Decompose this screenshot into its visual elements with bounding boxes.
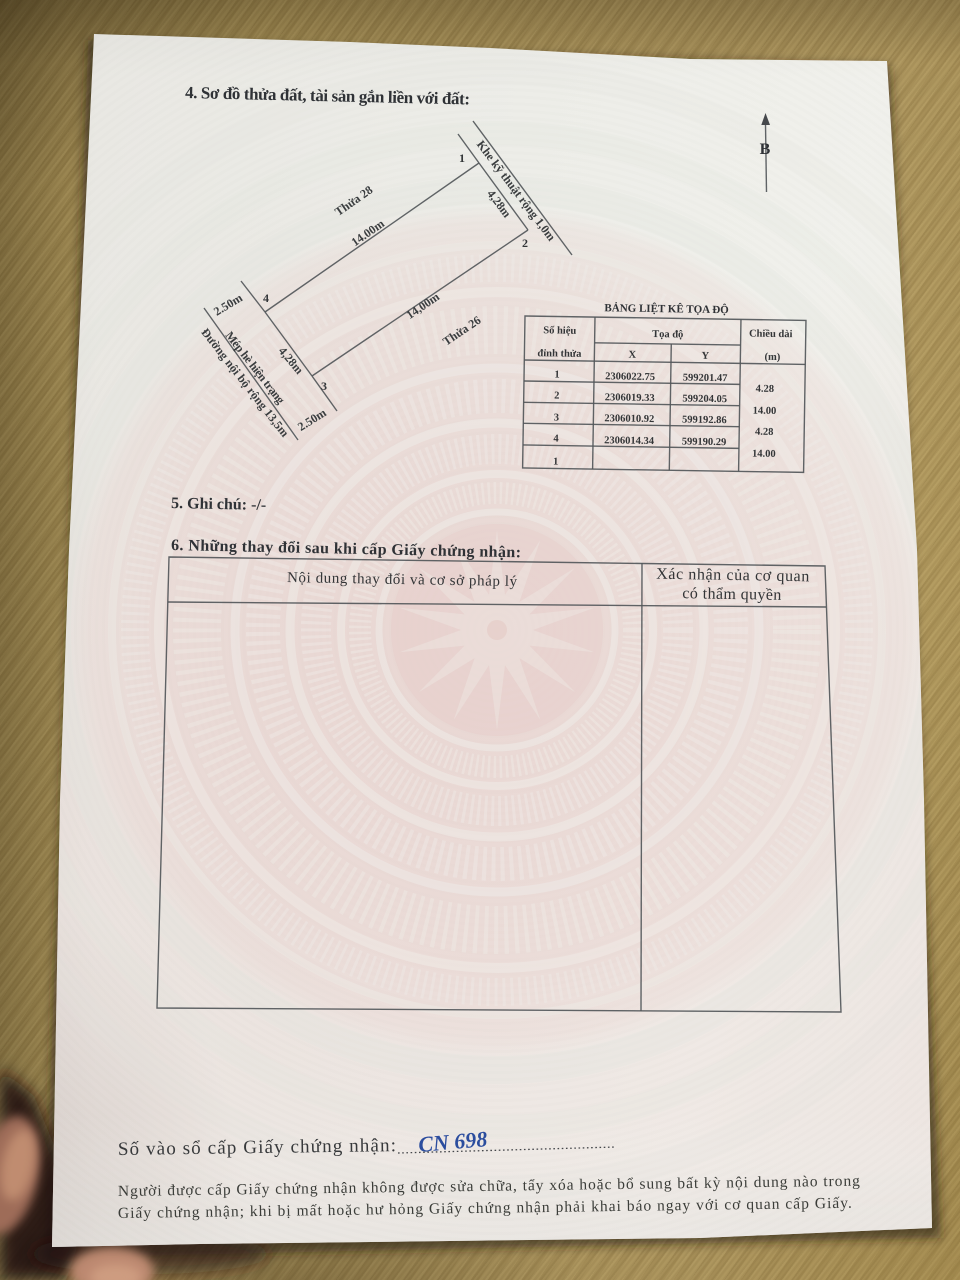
svg-text:có thẩm quyền: có thẩm quyền (682, 585, 782, 604)
svg-text:2.50m: 2.50m (295, 405, 329, 433)
svg-text:Nội dung thay đổi và cơ sở phá: Nội dung thay đổi và cơ sở pháp lý (287, 570, 518, 590)
svg-text:599190.29: 599190.29 (682, 436, 727, 448)
svg-text:Giấy chứng nhận; khi bị mất ho: Giấy chứng nhận; khi bị mất hoặc hư hỏng… (118, 1195, 852, 1222)
svg-text:BẢNG LIỆT KÊ TỌA ĐỘ: BẢNG LIỆT KÊ TỌA ĐỘ (604, 301, 729, 316)
svg-text:4. Sơ đồ thửa đất, tài sản gắn: 4. Sơ đồ thửa đất, tài sản gắn liền với … (185, 83, 470, 108)
svg-text:4: 4 (553, 433, 559, 444)
svg-text:4,28m: 4,28m (276, 344, 307, 377)
svg-text:2: 2 (554, 390, 559, 401)
svg-text:599192.86: 599192.86 (682, 414, 727, 426)
svg-text:1: 1 (554, 369, 559, 380)
svg-text:Số vào sổ cấp Giấy chứng nhận:: Số vào sổ cấp Giấy chứng nhận: (118, 1135, 396, 1160)
svg-text:3: 3 (554, 412, 559, 423)
svg-text:2306019.33: 2306019.33 (605, 392, 655, 404)
svg-text:4: 4 (263, 291, 269, 305)
svg-text:1: 1 (553, 456, 558, 467)
svg-text:2306022.75: 2306022.75 (605, 371, 655, 383)
svg-text:Số hiệu: Số hiệu (543, 325, 576, 337)
svg-text:599204.05: 599204.05 (682, 393, 727, 405)
svg-text:14.00: 14.00 (753, 406, 777, 417)
svg-text:14.00: 14.00 (752, 449, 776, 460)
svg-text:Tọa độ: Tọa độ (652, 329, 683, 340)
svg-text:(m): (m) (764, 352, 780, 363)
svg-text:đỉnh thửa: đỉnh thửa (537, 348, 582, 360)
svg-text:2306010.92: 2306010.92 (604, 413, 654, 425)
svg-text:14,00m: 14,00m (404, 290, 443, 322)
svg-text:2306014.34: 2306014.34 (604, 435, 655, 447)
svg-text:5. Ghi chú: -/-: 5. Ghi chú: -/- (171, 495, 266, 514)
svg-text:Thửa 26: Thửa 26 (440, 313, 483, 349)
svg-text:B: B (760, 141, 771, 158)
svg-text:CN 698: CN 698 (417, 1126, 488, 1157)
svg-text:Khe kỹ thuật rộng 1,0m: Khe kỹ thuật rộng 1,0m (474, 138, 559, 244)
svg-text:2: 2 (522, 236, 528, 250)
svg-text:Y: Y (702, 351, 710, 362)
svg-text:4.28: 4.28 (755, 427, 774, 438)
svg-text:3: 3 (321, 379, 327, 393)
svg-text:X: X (629, 350, 637, 361)
svg-text:14.00m: 14.00m (349, 216, 387, 249)
svg-text:1: 1 (459, 151, 465, 165)
svg-text:599201.47: 599201.47 (683, 372, 728, 384)
svg-text:Thửa 28: Thửa 28 (332, 183, 375, 219)
svg-text:2.50m: 2.50m (211, 291, 245, 319)
svg-text:4.28: 4.28 (756, 384, 775, 395)
svg-text:Chiều dài: Chiều dài (749, 329, 793, 341)
svg-text:Xác nhận của cơ quan: Xác nhận của cơ quan (656, 566, 810, 586)
